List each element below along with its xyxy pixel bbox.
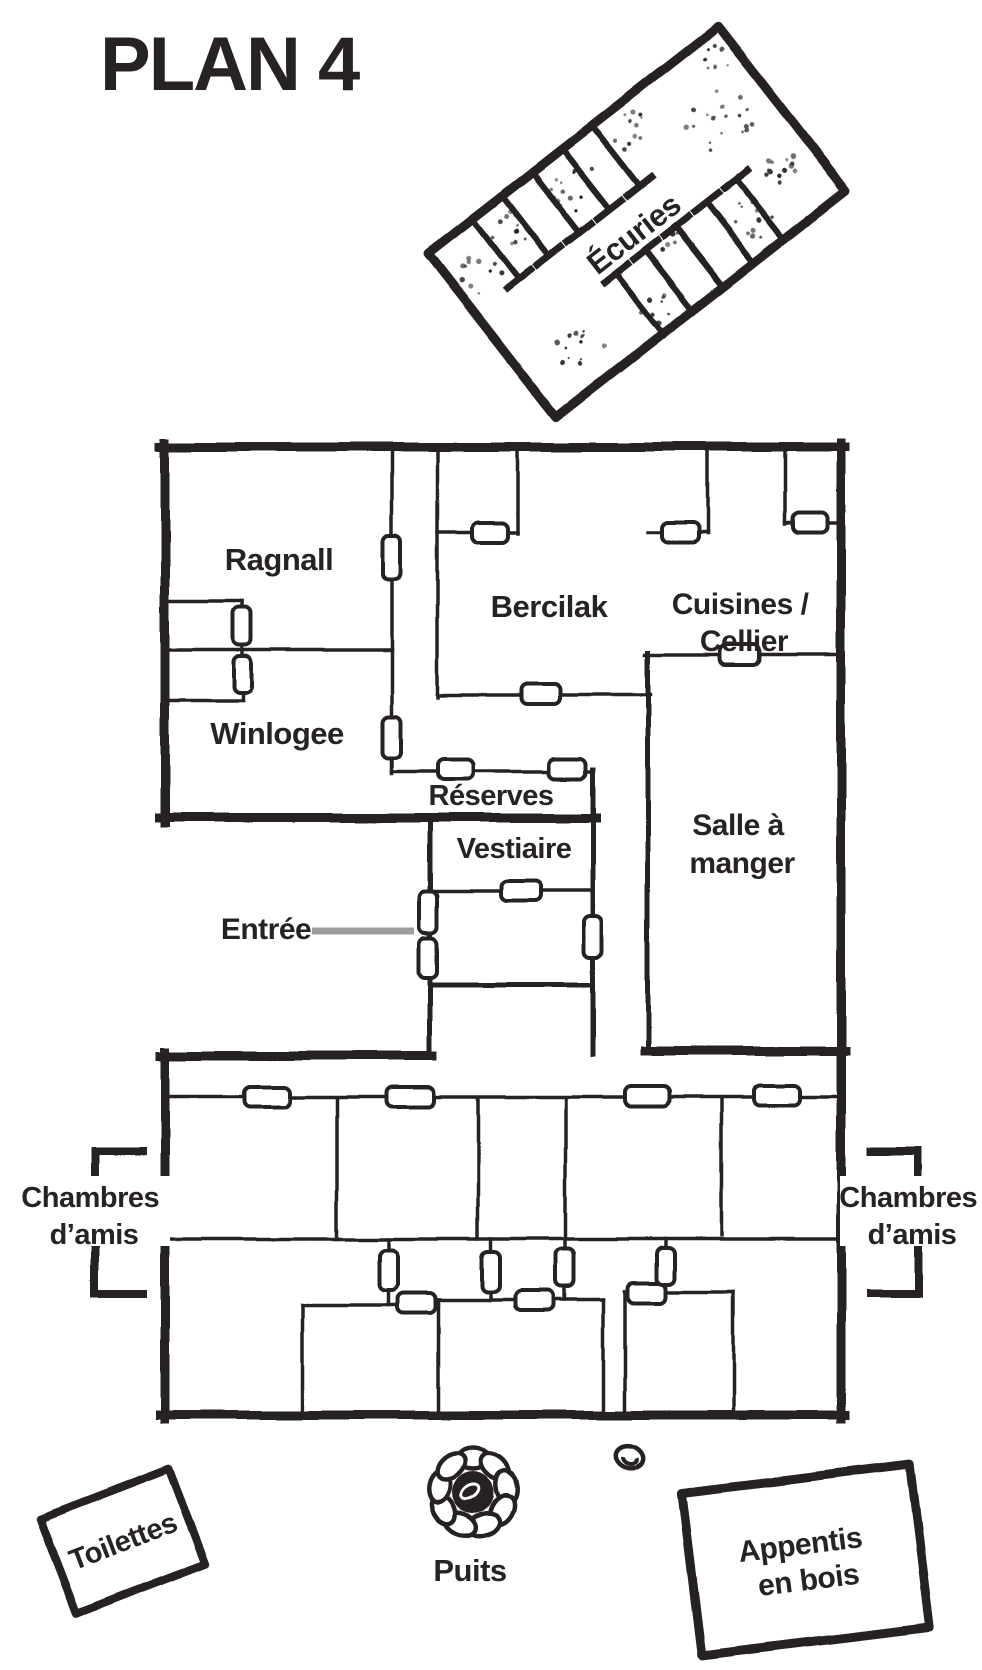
stall-partition — [616, 273, 661, 331]
stipple-dot — [623, 112, 627, 116]
stipple-dot — [709, 148, 714, 153]
door-symbol — [584, 916, 602, 958]
room-label-cuisines-cellier: Cuisines / Cellier — [672, 588, 817, 658]
well-shaft — [452, 1472, 494, 1514]
room-label-salle-a-manger: Salle à manger — [689, 809, 795, 880]
stipple-dot — [579, 194, 584, 199]
door-symbol — [482, 1252, 500, 1292]
room-label-winlogee: Winlogee — [210, 716, 344, 751]
stipple-dot — [574, 208, 578, 212]
stipple-dot — [516, 224, 520, 228]
stipple-dot — [706, 66, 710, 70]
door-symbol — [383, 716, 401, 758]
door-symbol — [793, 513, 827, 533]
stipple-dot — [630, 108, 637, 115]
stipple-dot — [724, 114, 729, 119]
stipple-dot — [589, 166, 595, 172]
stipple-dot — [578, 360, 585, 367]
stall-partition — [505, 199, 550, 257]
door-symbol — [662, 523, 698, 543]
stipple-dot — [781, 167, 788, 174]
stipple-dot — [736, 202, 740, 206]
stall-partition — [736, 179, 781, 237]
stipple-dot — [702, 57, 708, 63]
stipple-dot — [582, 330, 585, 333]
stipple-dot — [566, 333, 572, 339]
stipple-dot — [749, 227, 756, 234]
stipple-dot — [718, 46, 725, 53]
pebble-outline — [613, 1442, 646, 1472]
room-label-bercilak: Bercilak — [491, 589, 609, 624]
door-symbol — [233, 607, 251, 645]
stipple-dot — [742, 130, 746, 134]
stipple-dot — [465, 255, 472, 262]
stipple-dot — [564, 347, 568, 351]
door-symbol — [419, 938, 437, 978]
stipple-dot — [706, 47, 710, 51]
stipple-dot — [553, 339, 561, 347]
room-label-vestiaire: Vestiaire — [457, 833, 572, 865]
door-symbol — [386, 1087, 434, 1107]
door-symbol — [379, 1250, 397, 1290]
stipple-dot — [664, 241, 671, 248]
stipple-dot — [572, 330, 579, 337]
stipple-dot — [458, 262, 465, 269]
door-symbol — [516, 1291, 554, 1311]
stipple-dot — [498, 270, 505, 277]
stipple-dot — [683, 124, 691, 132]
stipple-dot — [554, 177, 558, 181]
door-symbol — [626, 1086, 670, 1106]
stipple-dot — [712, 43, 718, 49]
stipple-dot — [745, 108, 749, 112]
stall-partition — [676, 226, 721, 284]
stipple-dot — [513, 228, 520, 235]
stipple-dot — [492, 261, 498, 267]
door-symbol — [472, 523, 508, 543]
door-symbol — [437, 760, 473, 780]
door-symbol — [419, 891, 437, 933]
room-label-ragnall: Ragnall — [225, 542, 333, 577]
door-symbol — [754, 1085, 800, 1105]
stipple-dot — [792, 168, 798, 174]
stipple-dot — [568, 357, 571, 360]
stipple-dot — [457, 276, 465, 284]
door-symbol — [550, 759, 586, 779]
stipple-dot — [477, 292, 480, 295]
stall-partition — [594, 128, 639, 186]
stipple-dot — [709, 141, 712, 144]
stipple-dot — [467, 283, 474, 290]
stipple-dot — [581, 358, 584, 361]
plan-page: PLAN 4 Écuries Ragnall Bercilak Cuisines… — [0, 0, 982, 1670]
stipple-dot — [639, 135, 644, 140]
room-label-reserves: Réserves — [429, 780, 554, 812]
door-symbol — [397, 1293, 435, 1313]
stipple-dot — [503, 213, 510, 220]
stipple-dot — [559, 180, 562, 183]
stall-partition — [706, 203, 751, 261]
stipple-dot — [629, 118, 634, 123]
stipple-dot — [759, 236, 763, 240]
door-symbol — [628, 1283, 666, 1303]
stipple-dot — [776, 180, 782, 186]
stipple-dot — [690, 106, 697, 113]
stipple-dot — [662, 298, 665, 301]
stall-partition — [564, 152, 609, 210]
stipple-dot — [720, 103, 726, 109]
stipple-dot — [776, 173, 782, 179]
stipple-dot — [749, 233, 757, 241]
stipple-dot — [755, 217, 762, 224]
stipple-dot — [737, 114, 742, 119]
stipple-dot — [632, 133, 639, 140]
floor-plan-figure: PLAN 4 Écuries Ragnall Bercilak Cuisines… — [0, 0, 982, 1670]
stipple-dot — [726, 64, 729, 67]
stipple-dot — [559, 188, 565, 194]
stipple-dot — [737, 94, 744, 101]
stipple-dot — [579, 339, 584, 344]
pebble — [613, 1442, 646, 1472]
room-label-entree: Entrée — [221, 913, 311, 946]
stipple-dot — [634, 122, 640, 128]
stipple-dot — [622, 146, 628, 152]
door-symbol — [556, 1249, 574, 1287]
door-symbol — [501, 881, 541, 901]
stall-partition — [475, 222, 520, 280]
stipple-dot — [613, 138, 619, 144]
stipple-dot — [745, 231, 750, 236]
door-symbol — [521, 684, 561, 704]
stipple-dot — [739, 206, 742, 209]
stipple-dot — [639, 111, 645, 117]
stipple-dot — [474, 258, 482, 266]
door-symbol — [383, 535, 401, 579]
stipple-dot — [601, 342, 608, 349]
stipple-dot — [524, 237, 528, 241]
label-puits: Puits — [433, 1553, 506, 1588]
stipple-dot — [497, 218, 504, 225]
stipple-dot — [567, 194, 574, 201]
well — [426, 1449, 519, 1541]
stipple-dot — [672, 240, 677, 245]
stipple-dot — [732, 221, 737, 226]
stipple-dot — [627, 141, 633, 147]
stipple-dot — [667, 311, 671, 315]
stipple-dot — [789, 153, 797, 161]
stipple-dot — [721, 131, 725, 135]
door-symbol — [244, 1087, 290, 1107]
stipple-dot — [647, 295, 655, 303]
stipple-dot — [714, 88, 719, 93]
stall-partition — [534, 175, 579, 233]
door-symbol — [233, 656, 251, 692]
stipple-dot — [488, 269, 492, 273]
stipple-dot — [750, 121, 757, 128]
stipple-dot — [692, 125, 696, 129]
stipple-dot — [706, 112, 710, 116]
stipple-dot — [659, 246, 666, 253]
stipple-dot — [559, 360, 566, 367]
page-title: PLAN 4 — [100, 22, 360, 107]
stipple-dot — [785, 159, 789, 163]
door-symbol — [657, 1248, 675, 1284]
stipple-dot — [711, 115, 718, 122]
